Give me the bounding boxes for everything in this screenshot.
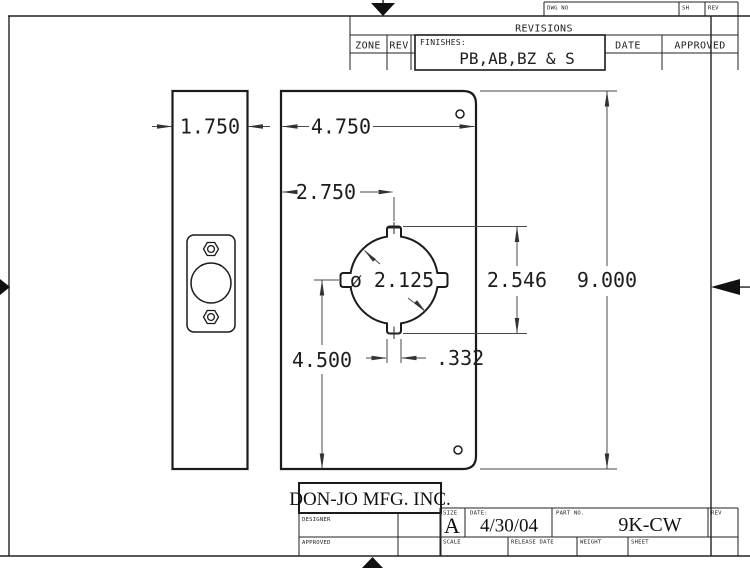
title-block: DON-JO MFG. INC. DESIGNER APPROVED SIZE … [289, 483, 738, 556]
dim-center-height: 4.500 [292, 348, 352, 372]
designer-label: DESIGNER [302, 517, 331, 523]
rev-column-label: REV [389, 41, 408, 52]
weight-label: WEIGHT [580, 540, 602, 546]
revisions-title: REVISIONS [515, 24, 573, 35]
mount-hole-bottom [454, 446, 462, 454]
cylinder-hole [191, 263, 231, 303]
side-plate-view [173, 91, 248, 469]
dim-side-width: 1.750 [180, 115, 240, 139]
sh-label: SH [682, 6, 689, 12]
zone-label: ZONE [355, 41, 381, 52]
screw-top [204, 243, 219, 256]
approved-column-label: APPROVED [674, 41, 725, 52]
dim-plate-height: 9.000 [577, 268, 637, 292]
scale-label: SCALE [443, 540, 461, 546]
rev-cell-label: REV [711, 511, 722, 517]
finishes-label: FINISHES: [420, 38, 466, 47]
finishes-value: PB,AB,BZ & S [459, 49, 575, 68]
mount-hole-top [456, 110, 464, 118]
centering-mark-bottom [362, 557, 383, 568]
approved-label: APPROVED [302, 540, 331, 546]
dim-center-offset: 2.750 [296, 180, 356, 204]
part-no-label: PART NO. [556, 511, 585, 517]
dwg-no-label: DWG NO [547, 6, 569, 12]
company-name: DON-JO MFG. INC. [289, 489, 451, 510]
dim-notch-width: .332 [436, 346, 484, 370]
dim-notch-span: 2.546 [487, 268, 547, 292]
screw-bottom [204, 311, 219, 324]
dim-bore-diameter: ø 2.125 [350, 268, 434, 292]
date-value: 4/30/04 [480, 516, 539, 537]
rev-strip-label: REV [708, 6, 719, 12]
drawing-number-strip: DWG NO SH REV [544, 2, 738, 16]
size-value: A [444, 513, 460, 538]
sheet-label: SHEET [631, 540, 649, 546]
part-no-value: 9K-CW [618, 514, 681, 536]
date-column-label: DATE [615, 41, 641, 52]
dim-plate-width: 4.750 [311, 115, 371, 139]
revisions-table: REVISIONS ZONE REV DATE APPROVED FINISHE… [350, 16, 738, 70]
release-date-label: RELEASE DATE [511, 540, 554, 546]
centering-mark-right [711, 279, 740, 295]
drawing-sheet: DWG NO SH REV REVISIONS ZONE REV DATE AP… [0, 0, 750, 568]
centering-mark-top [371, 3, 395, 16]
